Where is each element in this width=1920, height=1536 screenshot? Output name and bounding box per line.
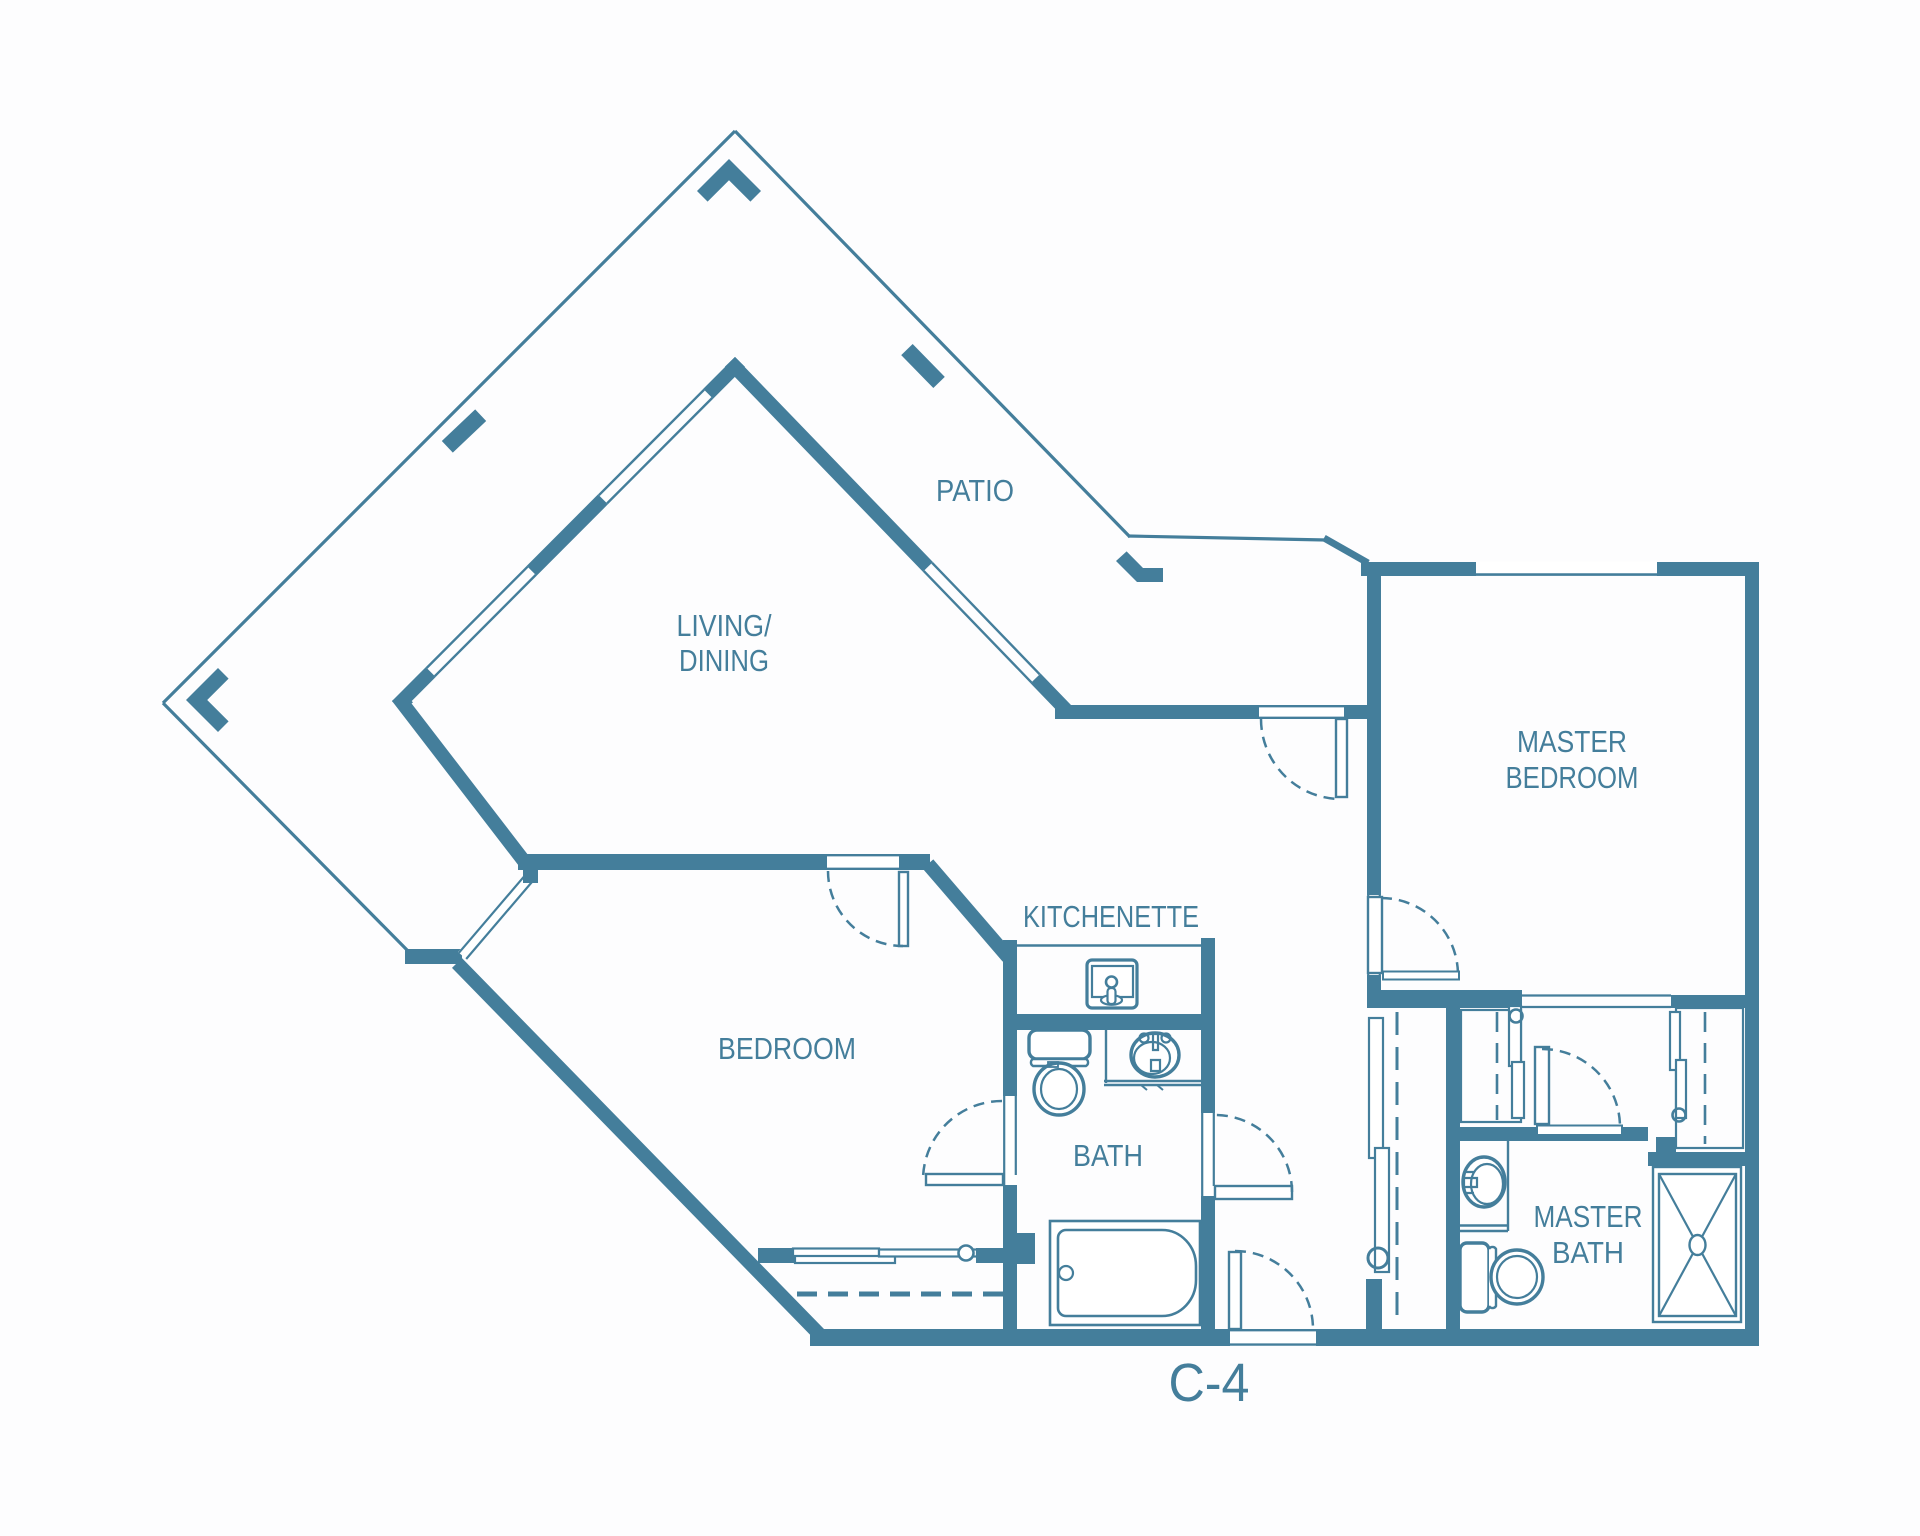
svg-text:LIVING/: LIVING/ [677,608,772,643]
svg-text:PATIO: PATIO [936,473,1014,508]
svg-text:C-4: C-4 [1169,1353,1250,1413]
svg-text:BATH: BATH [1073,1138,1143,1173]
svg-text:MASTER: MASTER [1534,1199,1643,1234]
svg-text:BEDROOM: BEDROOM [1506,760,1639,795]
svg-text:BATH: BATH [1552,1235,1624,1270]
svg-text:KITCHENETTE: KITCHENETTE [1023,899,1199,934]
svg-text:MASTER: MASTER [1517,724,1627,759]
svg-text:DINING: DINING [679,643,769,678]
svg-text:BEDROOM: BEDROOM [718,1031,856,1066]
